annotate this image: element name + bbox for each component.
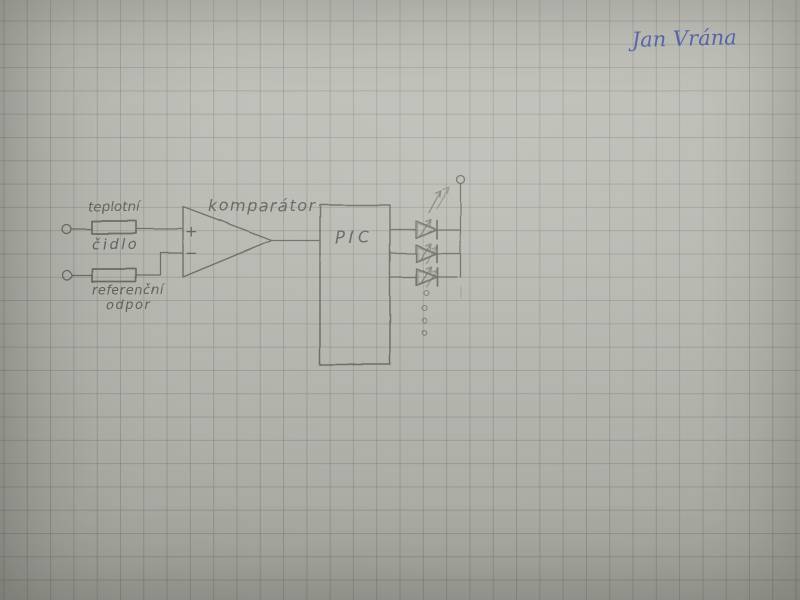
comparator-plus-input: +	[185, 223, 198, 241]
temperature-sensor-resistor	[92, 221, 136, 234]
led-2	[416, 244, 461, 264]
comparator-minus-input: −	[185, 244, 198, 262]
emission-arrows-top	[429, 187, 449, 213]
output-terminal	[457, 176, 465, 184]
led-1	[416, 220, 461, 239]
wire-reference-to-minus	[136, 253, 183, 275]
label-comparator: komparátor	[208, 196, 317, 215]
reference-resistor	[92, 269, 136, 282]
author-signature: Jan Vrána	[628, 25, 738, 52]
label-reference-resistor-line2: odpor	[106, 298, 151, 313]
label-temperature-sensor-line2: čidlo	[92, 237, 139, 253]
comparator-triangle	[183, 207, 272, 278]
led-3	[416, 267, 457, 287]
circuit-sketch: teplotní čidlo referenční odpor komparát…	[0, 0, 800, 600]
pencil-labels: teplotní čidlo referenční odpor komparát…	[88, 196, 373, 313]
label-reference-resistor-line1: referenční	[92, 283, 165, 298]
input-terminal-bottom	[63, 271, 72, 280]
photograph-of-sketch: teplotní čidlo referenční odpor komparát…	[0, 0, 800, 600]
input-terminal-top	[63, 225, 72, 234]
led-ellipsis-dots	[422, 291, 429, 335]
label-pic: PIC	[335, 228, 373, 247]
label-temperature-sensor-line1: teplotní	[88, 199, 142, 215]
